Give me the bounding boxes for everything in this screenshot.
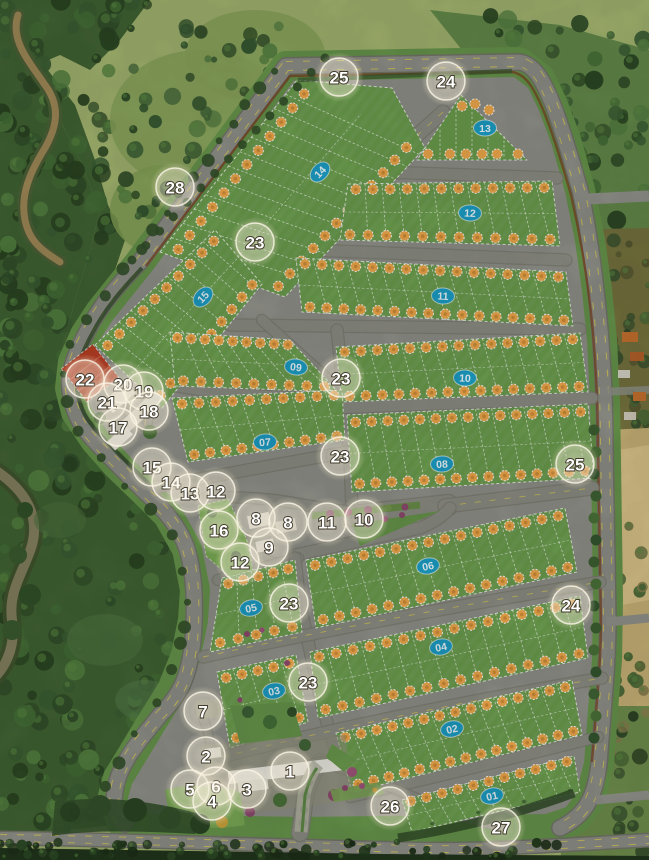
svg-text:24: 24	[562, 597, 581, 616]
svg-text:16: 16	[210, 522, 229, 541]
svg-text:9: 9	[264, 539, 273, 558]
svg-text:10: 10	[355, 511, 374, 530]
svg-text:12: 12	[207, 483, 226, 502]
svg-text:24: 24	[437, 73, 456, 92]
svg-text:18: 18	[140, 403, 159, 422]
svg-text:23: 23	[246, 234, 265, 253]
svg-text:26: 26	[381, 798, 400, 817]
svg-text:23: 23	[280, 595, 299, 614]
svg-text:12: 12	[231, 554, 250, 573]
svg-text:1: 1	[285, 763, 294, 782]
svg-text:4: 4	[207, 793, 217, 812]
svg-text:25: 25	[566, 456, 585, 475]
svg-text:17: 17	[109, 419, 128, 438]
svg-text:23: 23	[299, 674, 318, 693]
svg-text:3: 3	[242, 781, 251, 800]
svg-text:25: 25	[330, 69, 349, 88]
svg-text:27: 27	[492, 819, 511, 838]
svg-text:7: 7	[198, 703, 207, 722]
svg-text:11: 11	[318, 514, 336, 533]
svg-text:23: 23	[332, 370, 351, 389]
svg-text:23: 23	[331, 448, 350, 467]
svg-text:28: 28	[166, 179, 185, 198]
